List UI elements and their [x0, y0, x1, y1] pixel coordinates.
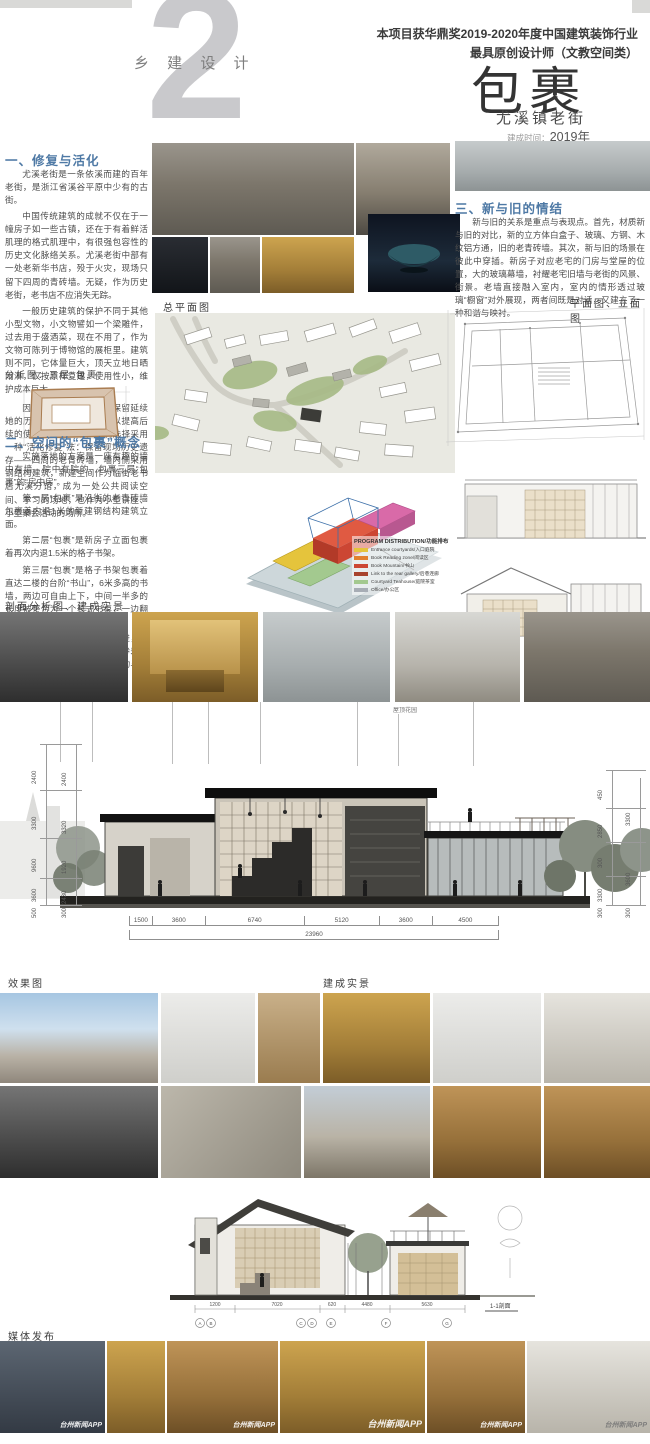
legend-item: Office/办公区 — [354, 586, 456, 593]
photo-old-street — [152, 143, 354, 235]
legend-title: PROGRAM DISTRIBUTION/功能排布 — [354, 537, 456, 545]
photo-alley-new — [395, 612, 520, 702]
dim-value: 3600 — [626, 873, 632, 886]
photo-bookstairs-people — [544, 1086, 650, 1178]
dim-tick — [606, 905, 646, 906]
photo-render-exterior — [0, 993, 158, 1083]
dim-line — [76, 744, 77, 906]
section1-title: 一、修复与活化 — [5, 150, 100, 169]
project-location: 尤溪镇老街 — [496, 107, 586, 128]
dim-value: 300 — [626, 908, 632, 918]
photo-white-room-2 — [544, 993, 650, 1083]
dim-value: 5120 — [305, 916, 380, 925]
legend-label: Courtyard Teahouse/庭院茶室 — [371, 578, 435, 585]
photo-media-crowd: 台州新闻APP — [427, 1341, 525, 1433]
dim-tick — [40, 838, 82, 839]
photo-render-wood — [258, 993, 320, 1083]
chapter-title: 乡 建 设 计 — [134, 52, 256, 73]
dim-value: 450 — [598, 790, 604, 800]
grid-bubble: A — [198, 1321, 201, 1326]
grid-bubble: E — [329, 1321, 332, 1326]
section-dimensions-bottom: 1500 3600 6740 5120 3600 4500 23960 — [129, 916, 499, 940]
photo-render-interior — [161, 993, 255, 1083]
legend-label: Entrance courtyards/入口庭院 — [371, 546, 434, 553]
legend-label: Book Reading zone/阅读区 — [371, 554, 429, 561]
analysis-diagram-label: 分析图：三层“包裹” — [5, 368, 103, 381]
dim-tick — [40, 790, 82, 791]
photo-book-mountain — [132, 612, 258, 702]
roof-garden-label: 屋顶花园 — [393, 705, 417, 714]
photo-interior-dark — [152, 237, 208, 293]
news-app-watermark: 台州新闻APP — [480, 1420, 522, 1430]
page-edge — [632, 0, 650, 13]
section3-title: 三、新与旧的情结 — [455, 198, 563, 217]
dim-value: 3600 — [32, 889, 38, 902]
dim-tick — [606, 770, 646, 771]
legend-swatch — [354, 548, 368, 552]
news-app-watermark: 台州新闻APP — [605, 1420, 647, 1430]
photo-old-street-2 — [524, 612, 650, 702]
dim-value: 9600 — [32, 859, 38, 872]
render-label: 效果图 — [8, 975, 44, 990]
dim-tick — [40, 878, 82, 879]
dim-value: 300 — [598, 908, 604, 918]
photo-bookshelf-people — [433, 1086, 541, 1178]
paragraph: 第二层“包裹”是新房子立面包裹着再次内退1.5米的格子书架。 — [5, 534, 148, 560]
dim-value: 500 — [32, 908, 38, 918]
legend-label: Book Mountain/书山 — [371, 562, 414, 569]
legend-item: Courtyard Teahouse/庭院茶室 — [354, 578, 456, 585]
photo-media-exterior: 台州新闻APP — [0, 1341, 105, 1433]
site-plan-label: 总平面图 — [163, 299, 211, 314]
dim-value: 620 — [328, 1302, 337, 1308]
legend-swatch — [354, 564, 368, 568]
legend-item: Link to the rear gallery/后巷连廊 — [354, 570, 456, 577]
grid-bubble: C — [299, 1321, 303, 1326]
section-photos-label: 剖面分析图、建成实景 — [5, 598, 125, 613]
grid-bubble: D — [310, 1321, 314, 1326]
dim-tick — [606, 808, 646, 809]
legend-swatch — [354, 580, 368, 584]
award-line1: 本项目获华鼎奖2019-2020年度中国建筑装饰行业 — [377, 25, 638, 44]
grid-bubble: B — [209, 1321, 212, 1326]
small-section-drawing: 1200 7020 620 4480 5630 A B C D E F G 1-… — [140, 1183, 560, 1333]
dim-total: 23960 — [129, 930, 499, 940]
legend-item: Book Mountain/书山 — [354, 562, 456, 569]
legend-item: Entrance courtyards/入口庭院 — [354, 546, 456, 553]
news-app-watermark: 台州新闻APP — [233, 1420, 275, 1430]
chapter-number: 2 — [146, 0, 247, 146]
dim-value: 3300 — [626, 813, 632, 826]
dim-value: 3600 — [153, 916, 206, 925]
photo-media-event: 台州新闻APP — [280, 1341, 425, 1433]
photo-white-room — [433, 993, 541, 1083]
dim-line — [612, 770, 613, 906]
built-label: 建成实景 — [323, 975, 371, 990]
dim-value: 300 — [598, 858, 604, 868]
photo-media-bookwall: 台州新闻APP — [167, 1341, 278, 1433]
dim-line — [46, 744, 47, 906]
photo-wood-corridor — [323, 993, 430, 1083]
legend-label: Link to the rear gallery/后巷连廊 — [371, 570, 439, 577]
program-legend: PROGRAM DISTRIBUTION/功能排布 Entrance court… — [352, 536, 458, 595]
dim-value: 4480 — [361, 1302, 372, 1308]
photo-media-shelves — [107, 1341, 165, 1433]
legend-swatch — [354, 588, 368, 592]
photo-detail — [210, 237, 260, 293]
legend-swatch — [354, 556, 368, 560]
news-app-watermark: 台州新闻APP — [367, 1417, 422, 1430]
dim-value: 2400 — [32, 771, 38, 784]
dim-value: 6740 — [206, 916, 305, 925]
dim-value: 7020 — [271, 1302, 282, 1308]
dim-tick — [40, 905, 82, 906]
site-plan-drawing — [155, 313, 455, 473]
photo-courtyard — [304, 1086, 430, 1178]
photo-aerial — [161, 1086, 301, 1178]
dim-value: 3320 — [62, 821, 68, 834]
dim-tick — [40, 744, 82, 745]
legend-swatch — [354, 572, 368, 576]
paragraph: 尤溪老街是一条依溪而建的百年老街，是浙江省溪谷平原中少有的古街。 — [5, 168, 148, 207]
section2-title: 二、空间的“包裹”概念 — [5, 432, 141, 451]
dim-value: 4500 — [433, 916, 499, 925]
legend-label: Office/办公区 — [371, 586, 399, 593]
dim-value: 3300 — [598, 889, 604, 902]
legend-item: Book Reading zone/阅读区 — [354, 554, 456, 561]
grid-bubble: F — [385, 1321, 388, 1326]
photo-facade-bw — [0, 1086, 158, 1178]
dim-value: 1200 — [209, 1302, 220, 1308]
paragraph: 第一层“包裹”是沿街的老青砖墙包裹着内退1米的新建钢结构建筑立面。 — [5, 492, 148, 531]
photo-brick-corridor — [0, 612, 128, 702]
floor-plan-drawing — [440, 306, 650, 452]
page-edge — [0, 0, 132, 8]
dim-value: 2430 — [62, 891, 68, 904]
dim-value: 3600 — [380, 916, 433, 925]
dim-tick — [606, 842, 646, 843]
poster: 2 乡 建 设 计 本项目获华鼎奖2019-2020年度中国建筑装饰行业 最具原… — [0, 0, 650, 1444]
paragraph: 实施落地的方案是一座有趣的墙中有墙、院中有院的、包裹三层“包裹”的“房中房”。 — [5, 450, 148, 489]
dim-value: 1500 — [129, 916, 153, 925]
paragraph: 中国传统建筑的成就不仅在于一幢房子如一些古镇，还在于有着鲜活肌理的格式肌理中，有… — [5, 210, 148, 301]
dim-value: 300 — [62, 908, 68, 918]
elevation-drawing-1 — [453, 456, 650, 544]
photo-media-reading: 台州新闻APP — [527, 1341, 650, 1433]
news-app-watermark: 台州新闻APP — [60, 1420, 102, 1430]
dim-value: 5630 — [421, 1302, 432, 1308]
photo-antique-bowl — [368, 214, 460, 292]
photo-shop-interior — [262, 237, 354, 293]
dim-value: 2400 — [62, 773, 68, 786]
dim-value: 3300 — [32, 817, 38, 830]
small-section-label: 1-1剖面 — [490, 1302, 511, 1310]
dim-value: 1920 — [62, 861, 68, 874]
grid-bubble: G — [445, 1321, 449, 1326]
photo-glass-terrace — [263, 612, 390, 702]
dim-value: 2850 — [598, 825, 604, 838]
photo-street-strip — [455, 141, 650, 191]
